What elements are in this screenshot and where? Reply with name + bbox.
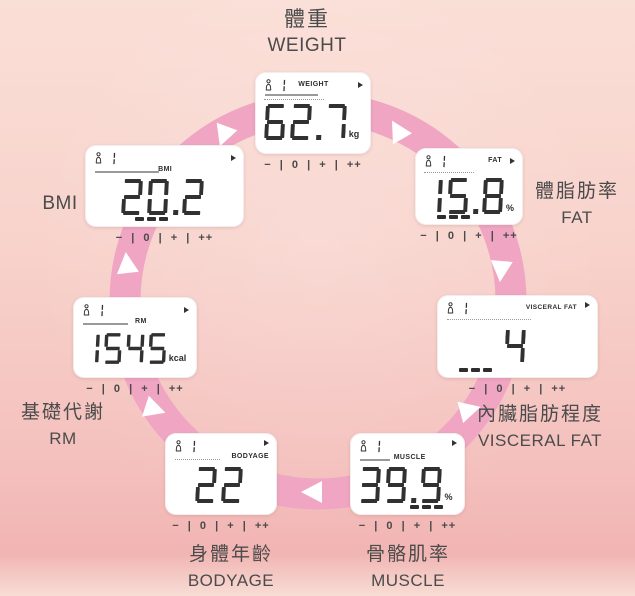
label-zh: 內臟脂肪程度 <box>455 403 625 427</box>
display-bmi: BMI − | 0 | + | ++ <box>85 145 244 244</box>
label-zh: 身體年齡 <box>151 543 311 567</box>
label-rm: 基礎代謝 RM <box>8 401 118 450</box>
label-en: MUSCLE <box>328 570 488 592</box>
lcd-unit: kg <box>349 129 360 139</box>
label-fat: 體脂肪率 FAT <box>519 180 635 229</box>
lcd-value <box>421 178 504 214</box>
lcd-screen: FAT % <box>415 148 523 225</box>
lcd-screen: BODYAGE <box>165 433 277 515</box>
level-bars <box>135 217 168 221</box>
lcd-value <box>195 467 243 503</box>
user-icon <box>446 301 455 319</box>
display-cycle-diagram: WEIGHT kg − | 0 | + | ++ FAT % − | 0 | +… <box>0 0 635 596</box>
user-icon <box>94 151 103 169</box>
lcd-screen: BMI <box>85 145 244 227</box>
lcd-label: BMI <box>158 166 172 173</box>
label-zh: 體脂肪率 <box>519 180 635 204</box>
lcd-screen: MUSCLE % <box>350 433 465 515</box>
label-visceral-fat: 內臟脂肪程度 VISCERAL FAT <box>455 403 625 452</box>
user-number <box>460 302 468 315</box>
lcd-screen: RM kcal <box>73 297 197 378</box>
range-scale: − | 0 | + | ++ <box>255 159 371 171</box>
lcd-label: VISCERAL FAT <box>526 304 577 311</box>
lcd-label: WEIGHT <box>264 81 363 88</box>
next-indicator-icon <box>184 307 189 313</box>
range-scale: − | 0 | + | ++ <box>73 383 197 395</box>
label-en: FAT <box>519 207 635 229</box>
range-scale: − | 0 | + | ++ <box>415 230 523 242</box>
lcd-label: MUSCLE <box>394 454 426 461</box>
lcd-label: RM <box>135 318 147 325</box>
lcd-screen: WEIGHT kg <box>255 72 371 154</box>
label-en: VISCERAL FAT <box>455 430 625 452</box>
lcd-unit: kcal <box>169 353 187 363</box>
label-weight: 體重 WEIGHT <box>227 8 387 57</box>
label-zh: 體重 <box>227 8 387 32</box>
user-icon <box>174 439 183 457</box>
lcd-screen: VISCERAL FAT <box>437 295 598 378</box>
display-weight: WEIGHT kg − | 0 | + | ++ <box>255 72 371 171</box>
lcd-value <box>360 467 443 503</box>
next-indicator-icon <box>264 440 269 446</box>
label-zh: 基礎代謝 <box>8 401 118 425</box>
next-indicator-icon <box>358 82 363 88</box>
range-scale: − | 0 | + | ++ <box>437 383 598 395</box>
label-en: RM <box>8 428 118 450</box>
range-scale: − | 0 | + | ++ <box>165 520 277 532</box>
user-number <box>438 155 446 168</box>
next-indicator-icon <box>510 158 515 164</box>
lcd-unit: % <box>444 492 452 502</box>
range-scale: − | 0 | + | ++ <box>350 520 465 532</box>
label-en: BMI <box>20 193 100 215</box>
label-bmi: BMI <box>20 193 100 215</box>
user-icon <box>82 303 91 321</box>
next-indicator-icon <box>585 302 590 308</box>
lcd-label: BODYAGE <box>231 453 269 460</box>
level-bars <box>437 215 470 219</box>
user-icon <box>424 154 433 172</box>
lcd-value <box>121 179 204 215</box>
level-bars <box>410 505 443 509</box>
label-zh: 骨骼肌率 <box>328 543 488 567</box>
next-indicator-icon <box>231 155 236 161</box>
lcd-label: FAT <box>488 157 502 164</box>
user-number <box>96 304 104 317</box>
label-muscle: 骨骼肌率 MUSCLE <box>328 543 488 592</box>
level-bars <box>459 368 492 372</box>
user-number <box>108 152 116 165</box>
user-icon <box>359 439 368 457</box>
lcd-value <box>504 328 526 364</box>
label-en: WEIGHT <box>227 35 387 57</box>
display-muscle: MUSCLE % − | 0 | + | ++ <box>350 433 465 532</box>
label-en: BODYAGE <box>151 570 311 592</box>
display-bodyage: BODYAGE − | 0 | + | ++ <box>165 433 277 532</box>
lcd-value <box>81 333 167 364</box>
display-fat: FAT % − | 0 | + | ++ <box>415 148 523 242</box>
user-number <box>373 440 381 453</box>
label-bodyage: 身體年齡 BODYAGE <box>151 543 311 592</box>
lcd-dotted-line <box>175 459 220 460</box>
user-number <box>188 440 196 453</box>
lcd-value <box>264 104 347 140</box>
display-rm: RM kcal − | 0 | + | ++ <box>73 297 197 395</box>
display-visceral-fat: VISCERAL FAT − | 0 | + | ++ <box>437 295 598 395</box>
range-scale: − | 0 | + | ++ <box>85 232 244 244</box>
lcd-unit: % <box>506 203 514 213</box>
